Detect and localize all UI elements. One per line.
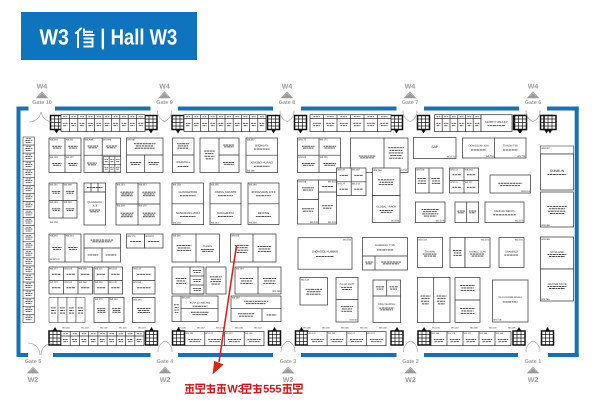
svg-text:W3.136: W3.136: [489, 327, 497, 330]
svg-text:W3.113: W3.113: [450, 169, 458, 172]
svg-text:W3: W3: [227, 383, 244, 395]
svg-text:W3.190: W3.190: [133, 298, 142, 301]
svg-text:Gate 5: Gate 5: [25, 359, 41, 365]
svg-text:ZONGSHAN JOHI: ZONGSHAN JOHI: [252, 190, 276, 194]
svg-text:W3.155: W3.155: [231, 235, 240, 238]
svg-text:W3.145: W3.145: [245, 332, 253, 335]
svg-text:W3.128: W3.128: [117, 205, 126, 208]
svg-text:W3.E01: W3.E01: [515, 238, 524, 241]
svg-text:W4: W4: [528, 84, 539, 91]
svg-text:W3.155: W3.155: [470, 327, 478, 330]
svg-text:W3.542: W3.542: [310, 221, 319, 224]
svg-text:W3.191: W3.191: [186, 332, 194, 335]
svg-text:Gate 9: Gate 9: [156, 100, 172, 106]
svg-text:W3.T56: W3.T56: [373, 169, 382, 172]
svg-text:W3.121: W3.121: [464, 332, 472, 335]
svg-text:W3.E09: W3.E09: [515, 220, 524, 223]
svg-text:W3.193: W3.193: [64, 281, 73, 284]
svg-text:W3.112: W3.112: [465, 181, 473, 184]
svg-text:W3.183: W3.183: [62, 327, 70, 330]
svg-text:HANGZHOU: HANGZHOU: [217, 211, 234, 215]
svg-text:W3.T26: W3.T26: [416, 169, 425, 172]
svg-text:FUJIAN: FUJIAN: [203, 245, 212, 248]
svg-text:W3: W3: [40, 25, 70, 50]
svg-text:W3.145: W3.145: [50, 235, 59, 238]
svg-text:W3.104: W3.104: [50, 139, 59, 142]
svg-text:W3.194: W3.194: [138, 327, 146, 330]
svg-text:W2: W2: [405, 377, 416, 384]
svg-text:KOYA (SANBENG): KOYA (SANBENG): [190, 302, 210, 305]
svg-text:W3.127: W3.127: [337, 182, 346, 185]
svg-text:GRAMMER: GRAMMER: [505, 250, 519, 253]
svg-text:GUANGZHOU: GUANGZHOU: [178, 190, 197, 194]
svg-text:W3.155: W3.155: [211, 184, 220, 187]
svg-text:W3.145: W3.145: [322, 327, 330, 330]
svg-text:W3.119: W3.119: [337, 169, 345, 172]
svg-text:W3.130: W3.130: [432, 327, 440, 330]
svg-text:W3.134: W3.134: [81, 327, 89, 330]
svg-text:W3.120: W3.120: [216, 327, 224, 330]
svg-text:W3.156: W3.156: [379, 327, 387, 330]
svg-text:W3.118: W3.118: [100, 327, 108, 330]
svg-text:W3.169: W3.169: [64, 201, 73, 204]
svg-text:W3.168: W3.168: [341, 327, 349, 330]
svg-text:W4: W4: [282, 84, 293, 91]
svg-text:W3.158: W3.158: [303, 327, 311, 330]
svg-text:W3.103: W3.103: [50, 156, 59, 159]
svg-text:W3.124: W3.124: [205, 332, 213, 335]
svg-text:W2: W2: [28, 377, 39, 384]
svg-text:W2: W2: [160, 377, 171, 384]
svg-text:W3.157: W3.157: [247, 139, 256, 142]
svg-text:W3.125: W3.125: [320, 156, 329, 159]
svg-text:JIAXING TAITE: JIAXING TAITE: [547, 282, 566, 286]
svg-text:W3.E88: W3.E88: [541, 224, 550, 227]
svg-text:W3.R07: W3.R07: [145, 235, 154, 238]
svg-text:W3.127: W3.127: [347, 332, 355, 335]
svg-text:W3.T85: W3.T85: [541, 298, 550, 301]
svg-text:W3.138: W3.138: [328, 332, 336, 335]
svg-text:W4: W4: [37, 84, 48, 91]
svg-text:W3.T18: W3.T18: [493, 319, 502, 322]
svg-text:HAMTEC: HAMTEC: [50, 258, 60, 261]
svg-text:W3.160: W3.160: [249, 184, 258, 187]
svg-text:JIANGSU BENYU: JIANGSU BENYU: [494, 210, 516, 213]
svg-text:W3.153: W3.153: [117, 184, 126, 187]
svg-text:W3.133: W3.133: [50, 281, 59, 284]
svg-text:SAP: SAP: [431, 145, 439, 149]
svg-text:THUNNV: THUNNV: [425, 250, 436, 253]
svg-text:W3.194: W3.194: [236, 268, 245, 271]
svg-text:W3.113: W3.113: [225, 332, 233, 335]
svg-text:STHA USE: STHA USE: [550, 250, 564, 254]
svg-text:W3.147: W3.147: [197, 327, 205, 330]
svg-text:W3.177: W3.177: [50, 268, 59, 271]
svg-text:W3.149: W3.149: [173, 235, 182, 238]
svg-text:W3.540: W3.540: [298, 181, 307, 184]
svg-text:W3.105: W3.105: [64, 268, 73, 271]
svg-text:W3.191: W3.191: [50, 184, 59, 187]
svg-text:W3.543: W3.543: [328, 221, 337, 224]
svg-text:W3.E03: W3.E03: [418, 238, 427, 241]
svg-text:W3.197: W3.197: [352, 169, 361, 172]
svg-text:W3.196: W3.196: [432, 332, 440, 335]
svg-text:W3.179: W3.179: [448, 332, 456, 335]
svg-text:W3.E06: W3.E06: [391, 220, 400, 223]
svg-text:Gate 2: Gate 2: [402, 359, 418, 365]
svg-text:W3.179: W3.179: [95, 298, 104, 301]
svg-text:W3.E34: W3.E34: [301, 278, 310, 281]
svg-text:W3.164: W3.164: [496, 332, 504, 335]
svg-text:| Hall W3: | Hall W3: [100, 25, 177, 50]
svg-text:W3.T23: W3.T23: [447, 156, 456, 159]
svg-text:W3.143: W3.143: [352, 182, 361, 185]
svg-text:W3.175: W3.175: [127, 235, 136, 238]
svg-text:DOUBLE COIN: DOUBLE COIN: [469, 250, 486, 253]
svg-text:CXG VEHICLE: CXG VEHICLE: [378, 303, 396, 306]
svg-text:W3.180: W3.180: [133, 281, 142, 284]
svg-text:W3.103: W3.103: [298, 156, 307, 159]
svg-text:W3.A87: W3.A87: [127, 139, 136, 142]
svg-text:W3.168: W3.168: [79, 281, 88, 284]
svg-text:W3.111: W3.111: [450, 181, 458, 184]
svg-text:Gate 8: Gate 8: [279, 100, 295, 106]
svg-text:W3.157: W3.157: [139, 184, 148, 187]
svg-text:HOLOWELL: HOLOWELL: [176, 161, 191, 164]
svg-text:TIANJIN TSK: TIANJIN TSK: [503, 145, 518, 148]
svg-text:GUANGSU TYPE: GUANGSU TYPE: [375, 244, 396, 247]
svg-text:W3.163: W3.163: [211, 222, 220, 225]
svg-text:W3.170: W3.170: [109, 281, 118, 284]
svg-text:W3.E85: W3.E85: [541, 238, 550, 241]
svg-text:W3.T19: W3.T19: [486, 155, 495, 158]
svg-text:NANCHANG ZOLI: NANCHANG ZOLI: [176, 211, 200, 215]
svg-text:BEIJING: BEIJING: [258, 211, 270, 215]
svg-text:W3.187: W3.187: [182, 297, 191, 300]
svg-text:W3.148: W3.148: [95, 281, 104, 284]
svg-text:Gate 10: Gate 10: [32, 100, 51, 106]
svg-text:W3.E02: W3.E02: [481, 238, 490, 241]
svg-text:W3.137: W3.137: [133, 268, 142, 271]
svg-text:W2: W2: [283, 377, 294, 384]
svg-text:W3.128: W3.128: [50, 221, 59, 224]
svg-text:W3.E87: W3.E87: [541, 147, 550, 150]
svg-text:JUJI: JUJI: [92, 205, 97, 208]
svg-text:GLOBAL TRACK: GLOBAL TRACK: [376, 206, 396, 209]
svg-text:W3.175: W3.175: [139, 205, 148, 208]
svg-text:Gate 3: Gate 3: [280, 359, 296, 365]
svg-text:W3.171: W3.171: [320, 139, 329, 142]
svg-text:JINING SHANTE: JINING SHANTE: [214, 190, 236, 194]
svg-text:W3.150: W3.150: [173, 222, 182, 225]
svg-text:W3.115: W3.115: [119, 327, 127, 330]
svg-text:W3.191: W3.191: [360, 327, 368, 330]
svg-text:DONGGUAN KIM: DONGGUAN KIM: [469, 145, 489, 148]
svg-text:W3.122: W3.122: [254, 327, 262, 330]
svg-text:W3.123: W3.123: [367, 332, 375, 335]
svg-text:NORTH VALLEY: NORTH VALLEY: [485, 120, 508, 124]
svg-text:W3.E08: W3.E08: [436, 220, 445, 223]
svg-text:W3.185: W3.185: [480, 332, 488, 335]
svg-text:W3.158: W3.158: [249, 222, 258, 225]
svg-text:W3.127: W3.127: [66, 156, 75, 159]
svg-text:ZHONGCE RUBBER: ZHONGCE RUBBER: [312, 250, 338, 254]
svg-text:W3.195: W3.195: [508, 327, 516, 330]
svg-text:W3.E18: W3.E18: [521, 190, 530, 193]
svg-text:Gate 7: Gate 7: [402, 100, 418, 106]
svg-text:W3.1B7: W3.1B7: [232, 297, 241, 300]
svg-text:W3.E04: W3.E04: [343, 238, 352, 241]
svg-text:W3.A90: W3.A90: [103, 139, 112, 142]
svg-text:W2: W2: [528, 377, 539, 384]
svg-text:W3.111: W3.111: [66, 139, 74, 142]
svg-text:W4: W4: [159, 84, 170, 91]
svg-text:W3.190: W3.190: [272, 290, 281, 293]
svg-text:Gate 1: Gate 1: [525, 359, 541, 365]
svg-text:XINGBO HUANG: XINGBO HUANG: [251, 161, 274, 165]
svg-text:BICHUAN: BICHUAN: [255, 143, 268, 147]
svg-text:W3.146: W3.146: [110, 298, 119, 301]
svg-text:W3.115: W3.115: [95, 268, 103, 271]
svg-text:W3.158: W3.158: [173, 184, 182, 187]
svg-text:W3.166: W3.166: [247, 170, 256, 173]
svg-text:TR-LLERONG WHEEL: TR-LLERONG WHEEL: [498, 296, 523, 299]
svg-text:W3.T16: W3.T16: [517, 155, 526, 158]
svg-text:W3.A89: W3.A89: [85, 139, 94, 142]
svg-text:W3.E32: W3.E32: [350, 318, 359, 321]
svg-text:W3.148: W3.148: [465, 169, 474, 172]
svg-text:W3.139: W3.139: [235, 327, 243, 330]
svg-text:W3.110: W3.110: [109, 268, 117, 271]
svg-text:W3.183: W3.183: [50, 201, 59, 204]
svg-text:W3.158: W3.158: [79, 268, 88, 271]
svg-text:W3.144: W3.144: [66, 235, 75, 238]
svg-text:W3.177: W3.177: [298, 139, 307, 142]
svg-text:W3.139: W3.139: [178, 327, 186, 330]
svg-text:W3.541: W3.541: [328, 181, 337, 184]
svg-text:W3.141: W3.141: [308, 332, 316, 335]
svg-text:W3.189: W3.189: [64, 184, 73, 187]
svg-text:Gate 4: Gate 4: [157, 359, 173, 365]
svg-text:555: 555: [263, 383, 281, 395]
svg-text:W4: W4: [405, 84, 416, 91]
svg-text:W3.157: W3.157: [451, 327, 459, 330]
svg-text:SUNBUN: SUNBUN: [550, 169, 565, 173]
svg-text:PULSE KNITT: PULSE KNITT: [340, 283, 355, 286]
svg-text:Gate 6: Gate 6: [525, 100, 541, 106]
